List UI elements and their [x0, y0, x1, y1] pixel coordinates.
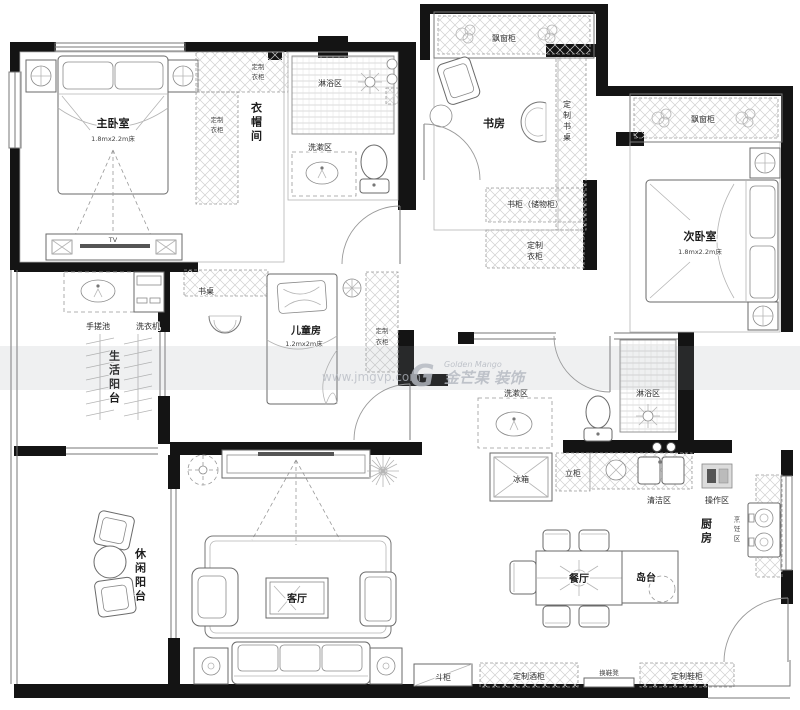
clean-zone-label: 清洁区: [647, 495, 671, 505]
glazing-life-balcony-left: [11, 270, 17, 684]
master-shower-label: 淋浴区: [318, 78, 342, 88]
dining-chair: [543, 530, 570, 551]
study-bay-label: 飘窗柜: [492, 33, 516, 43]
hand-wash-sink: [64, 272, 142, 312]
cook-zone-label: 烹饪区: [732, 515, 740, 545]
master-vanity: [292, 152, 356, 196]
study: 飘窗柜 定制书桌 书房 书柜（储物柜） 定制 衣柜: [430, 12, 594, 268]
armchair-right: [360, 572, 396, 626]
plant-icon: [367, 455, 399, 487]
side-table: [194, 648, 228, 684]
wardrobe-side-label-2: 衣柜: [211, 125, 225, 134]
lounge-chair: [436, 55, 481, 105]
floor-plan-drawing: 主卧室 1.8mx2.2m床 TV 定制 衣柜 定制 衣柜 衣帽间 淋浴区: [0, 0, 800, 710]
shower-head-icon: [358, 70, 382, 94]
valve-icon: [667, 443, 676, 452]
master-toilet: [360, 145, 389, 193]
tall-cabinet-label: 立柜: [565, 468, 581, 478]
kids-desk-label: 书桌: [198, 286, 214, 296]
master-bed-size-label: 1.8mx2.2m床: [91, 134, 135, 143]
master-wash-label: 洗漱区: [308, 142, 332, 152]
second-bedroom: 飘窗柜 次卧室 1.8mx2.2m床: [630, 94, 782, 332]
entry-door: [724, 598, 788, 662]
cloakroom-label: 衣帽间: [250, 101, 263, 144]
tv-label: TV: [108, 236, 118, 244]
balcony-divider: [66, 448, 158, 454]
nightstand: [748, 302, 778, 330]
dining-chair: [510, 561, 536, 594]
hall-wardrobe-label-2: 衣柜: [527, 251, 543, 261]
hand-sink-label: 手搓池: [86, 321, 110, 331]
master-bedroom-label: 主卧室: [97, 116, 130, 130]
watermark: www.jmgvp.com G Golden Mango 金芒果 装饰: [0, 346, 800, 394]
ceiling-fan-icon: [343, 279, 361, 297]
balcony-chair: [93, 510, 135, 551]
kids-wardrobe-label-1: 定制: [376, 326, 390, 335]
bedroom2-bay-label: 飘窗柜: [691, 114, 715, 124]
nightstand-right: [168, 60, 198, 92]
side-table: [370, 648, 402, 684]
bath2-vanity: [478, 398, 552, 448]
living-label: 客厅: [286, 592, 307, 605]
living-room: 客厅: [188, 450, 402, 684]
hall-wardrobe-label-1: 定制: [527, 240, 543, 250]
towel-hook-icon: [387, 74, 397, 84]
wardrobe-top-label-2: 衣柜: [252, 72, 266, 81]
balcony-chair: [94, 577, 137, 618]
cutting-board: [702, 464, 732, 488]
chest-label: 斗柜: [435, 672, 451, 682]
wardrobe-side-cabinet: [196, 92, 238, 204]
watermark-logo: G: [410, 359, 435, 394]
shoe-bench-label: 换鞋凳: [599, 668, 619, 677]
window-master-left: [9, 72, 21, 148]
pot-icon: [606, 460, 626, 480]
dining-label: 餐厅: [568, 572, 589, 585]
dining-chair: [579, 606, 609, 627]
kids-room-door: [354, 384, 410, 440]
kitchen-label: 厨房: [700, 518, 713, 546]
nightstand-left: [26, 60, 56, 92]
master-suite-door: [342, 206, 400, 264]
leisure-balcony-label: 休闲阳台: [134, 547, 148, 604]
bath2-partition: [474, 333, 678, 339]
armchair-left: [192, 568, 238, 626]
shower-head-icon: [636, 404, 660, 428]
shoe-bench: [584, 678, 634, 687]
master-shower-floor: [292, 56, 394, 134]
wardrobe-side-label-1: 定制: [211, 115, 225, 124]
washing-machine: [134, 272, 164, 312]
bedroom2-bed-size-label: 1.8mx2.2m床: [678, 247, 722, 256]
dining-chair: [543, 606, 570, 627]
balcony-table: [94, 546, 126, 578]
watermark-url: www.jmgvp.com: [322, 370, 421, 384]
wardrobe-top-label-1: 定制: [252, 62, 266, 71]
watermark-brand-cn: 金芒果 装饰: [444, 369, 527, 387]
kids-wardrobe-label-2: 衣柜: [376, 337, 390, 346]
window-kitchen-right: [781, 476, 792, 570]
stove: [748, 503, 780, 557]
watermark-brand-en: Golden Mango: [444, 360, 502, 369]
wardrobe-top-cabinet: [196, 52, 288, 92]
island-label: 岛台: [636, 571, 656, 584]
kids-desk-chair: [209, 316, 241, 333]
bookcase-label: 书柜（储物柜）: [507, 199, 563, 209]
dining-room: 餐厅 岛台: [510, 530, 678, 627]
towel-hook-icon: [387, 59, 397, 69]
desk-chair: [521, 102, 546, 142]
valve-icon: [653, 443, 662, 452]
sofa: [232, 642, 370, 684]
washer-label: 洗衣机: [136, 321, 160, 331]
study-desk-label: 定制书桌: [563, 99, 572, 144]
kids-room-label: 儿童房: [290, 324, 321, 337]
fridge-label: 冰箱: [513, 474, 529, 484]
dining-chair: [579, 530, 609, 551]
nightstand: [750, 148, 780, 178]
glazing-leisure-living-divider: [171, 489, 176, 638]
floor-plan: 主卧室 1.8mx2.2m床 TV 定制 衣柜 定制 衣柜 衣帽间 淋浴区: [0, 0, 800, 710]
prep-zone-label: 操作区: [705, 495, 729, 505]
wine-cabinet-label: 定制酒柜: [513, 671, 545, 681]
master-bath: 淋浴区 洗漱区: [288, 52, 398, 200]
leisure-balcony: 休闲阳台: [93, 510, 147, 618]
study-label: 书房: [483, 116, 505, 130]
ceiling-fan-icon: [188, 455, 218, 485]
bedroom2-label: 次卧室: [684, 229, 717, 243]
study-door: [424, 124, 480, 180]
shoe-cabinet-label: 定制鞋柜: [671, 671, 703, 681]
cloakroom: 定制 衣柜 定制 衣柜 衣帽间: [196, 52, 288, 204]
bath2-toilet: [584, 396, 612, 441]
window-master-top: [55, 43, 185, 51]
stool: [430, 105, 452, 127]
kids-desk-cabinet: [184, 270, 268, 296]
